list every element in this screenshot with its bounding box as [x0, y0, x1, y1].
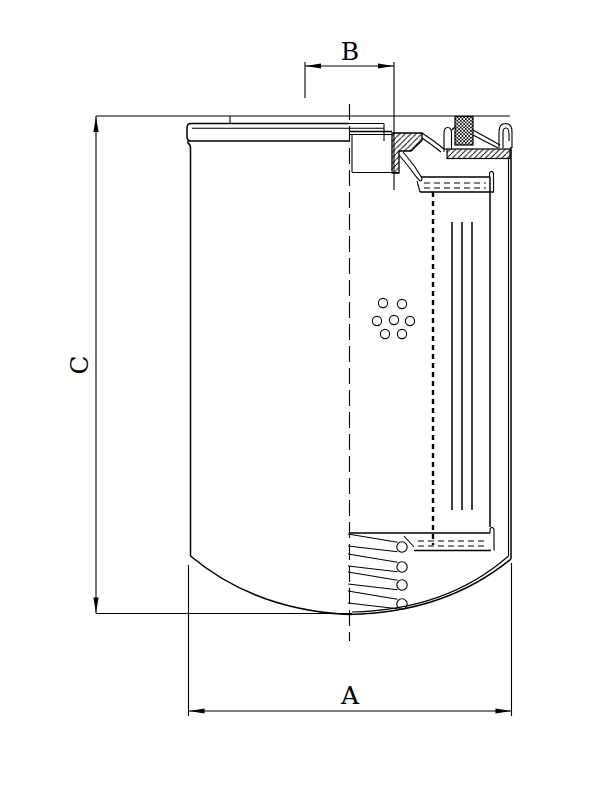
- dimension-b-label: B: [341, 37, 359, 66]
- dimension-c-label: C: [65, 355, 94, 374]
- bottom-end-cap-right-lip: [490, 528, 494, 551]
- can-bottom-left-curve: [191, 556, 350, 615]
- filter-element: [349, 172, 494, 551]
- coil-spring: [348, 534, 407, 609]
- seam-cap-outline: [187, 124, 349, 142]
- spring-coil-4: [348, 591, 407, 609]
- baffle-tip: [420, 179, 422, 182]
- dimension-a-arrow-right-icon: [496, 708, 512, 713]
- dimension-b-arrow-right-icon: [378, 63, 394, 68]
- spring-coil-1: [348, 534, 407, 552]
- section-head: [349, 117, 512, 560]
- flange-section: [447, 149, 510, 159]
- baffle-outer-curve: [399, 155, 420, 181]
- perforation-holes: [372, 298, 414, 338]
- can-left-wall: [188, 141, 191, 556]
- retainer-channel: [444, 128, 452, 153]
- dimension-b-arrow-left-icon: [306, 63, 322, 68]
- canister-exterior: [187, 124, 384, 615]
- spring-coil-3: [348, 572, 407, 590]
- bottom-end-cap-recess-step: [404, 536, 414, 547]
- dimension-c-arrow-up-icon: [93, 117, 98, 133]
- dimension-c-arrow-down-icon: [93, 598, 98, 614]
- dimension-a-label: A: [340, 681, 360, 710]
- top-end-cap-left-edge: [417, 181, 420, 192]
- gasket-seal-section: [455, 117, 473, 146]
- rolled-seam-inner: [503, 128, 509, 148]
- spring-coil-2: [348, 554, 407, 572]
- filter-technical-drawing: C B: [0, 0, 612, 792]
- rolled-seam-outer: [499, 124, 512, 149]
- can-bottom-right-inner-curve: [352, 556, 509, 612]
- threaded-boss-section: [392, 133, 422, 173]
- drawing-page: C B: [0, 0, 612, 792]
- dimension-a-arrow-left-icon: [189, 708, 205, 713]
- baffle-inner-curve: [403, 152, 422, 179]
